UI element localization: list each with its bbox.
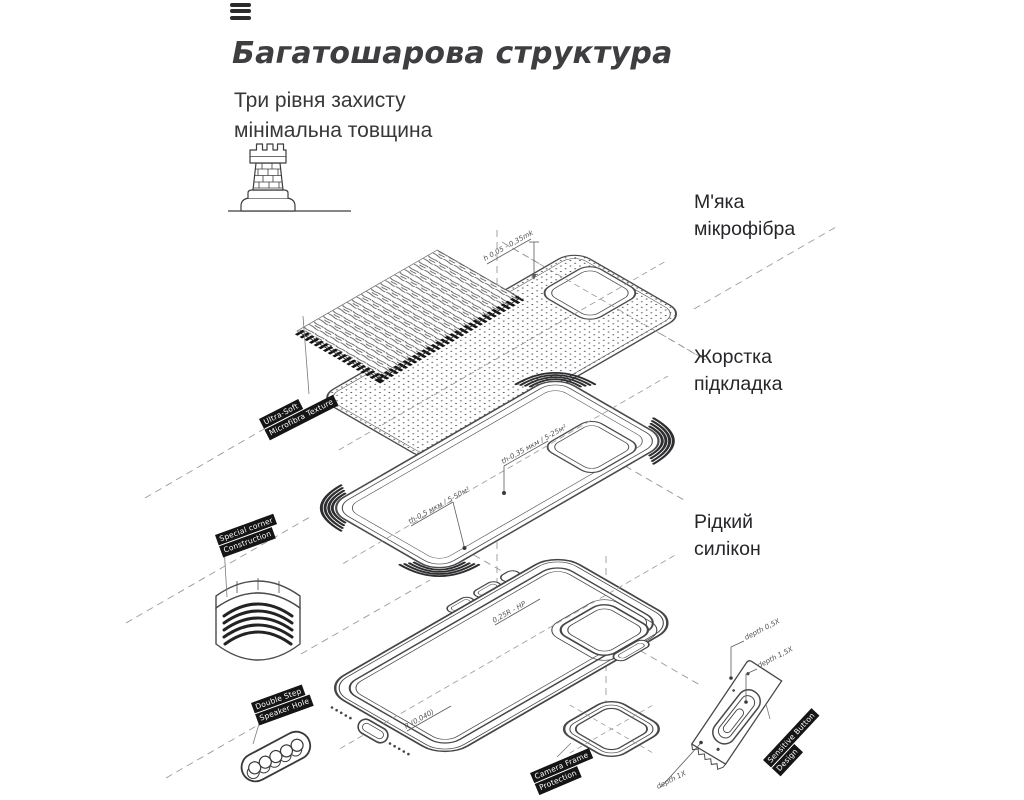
dimension-annotation: depth 1X <box>655 769 687 791</box>
corner-bumper-detail <box>216 578 300 660</box>
exploded-diagram: h 0,05 - 0,35mk th-0,35 мкм / 5-25м² th-… <box>0 0 1024 800</box>
product-infographic: h 0,05 - 0,35mk th-0,35 мкм / 5-25м² th-… <box>0 0 1024 800</box>
menu-icon <box>230 3 251 20</box>
castle-tower-icon <box>228 144 351 211</box>
layer-label-hardshell: Жорстка підкладка <box>694 344 782 398</box>
dimension-annotation: depth 0,5X <box>743 617 781 642</box>
layer-label-silicone: Рідкий силікон <box>694 509 761 563</box>
dimension-annotation: h 0,05 - 0,35mk <box>482 228 535 262</box>
silicone-layer <box>271 514 744 787</box>
subtitle-line-2: мінімальна товщина <box>234 119 432 142</box>
page-subtitle: Три рівня захисту мінімальна товщина <box>234 86 432 146</box>
page-title: Багатошарова структура <box>232 36 673 71</box>
layer-label-microfiber: М'яка мікрофібра <box>694 189 795 243</box>
speaker-holes-detail <box>237 727 315 786</box>
dimension-annotation: depth 1,5X <box>756 645 794 670</box>
subtitle-line-1: Три рівня захисту <box>234 89 406 112</box>
